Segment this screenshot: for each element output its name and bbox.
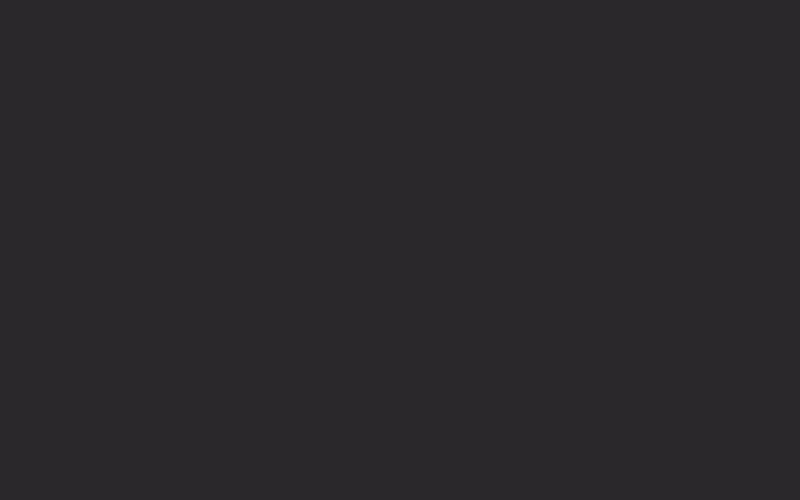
architectural-section-stage xyxy=(0,0,800,500)
section-drawing-canvas xyxy=(0,0,800,500)
